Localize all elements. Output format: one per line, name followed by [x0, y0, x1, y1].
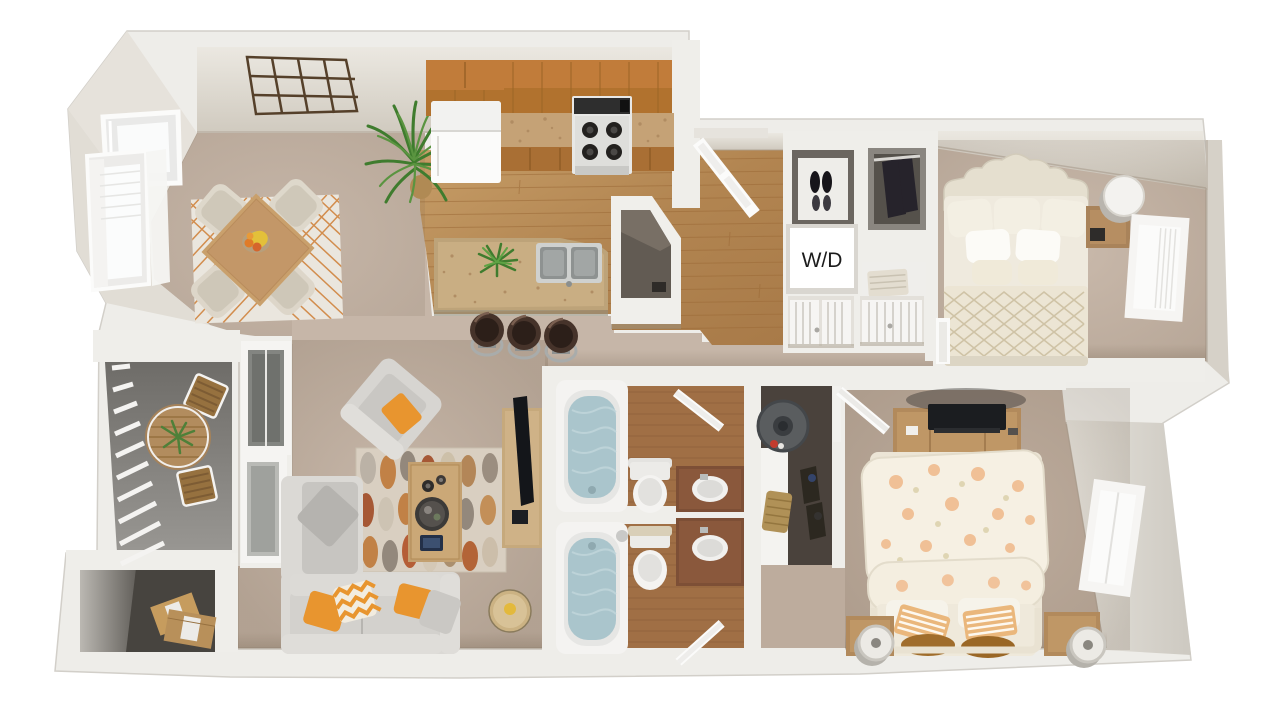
- svg-text:W/D: W/D: [802, 249, 843, 272]
